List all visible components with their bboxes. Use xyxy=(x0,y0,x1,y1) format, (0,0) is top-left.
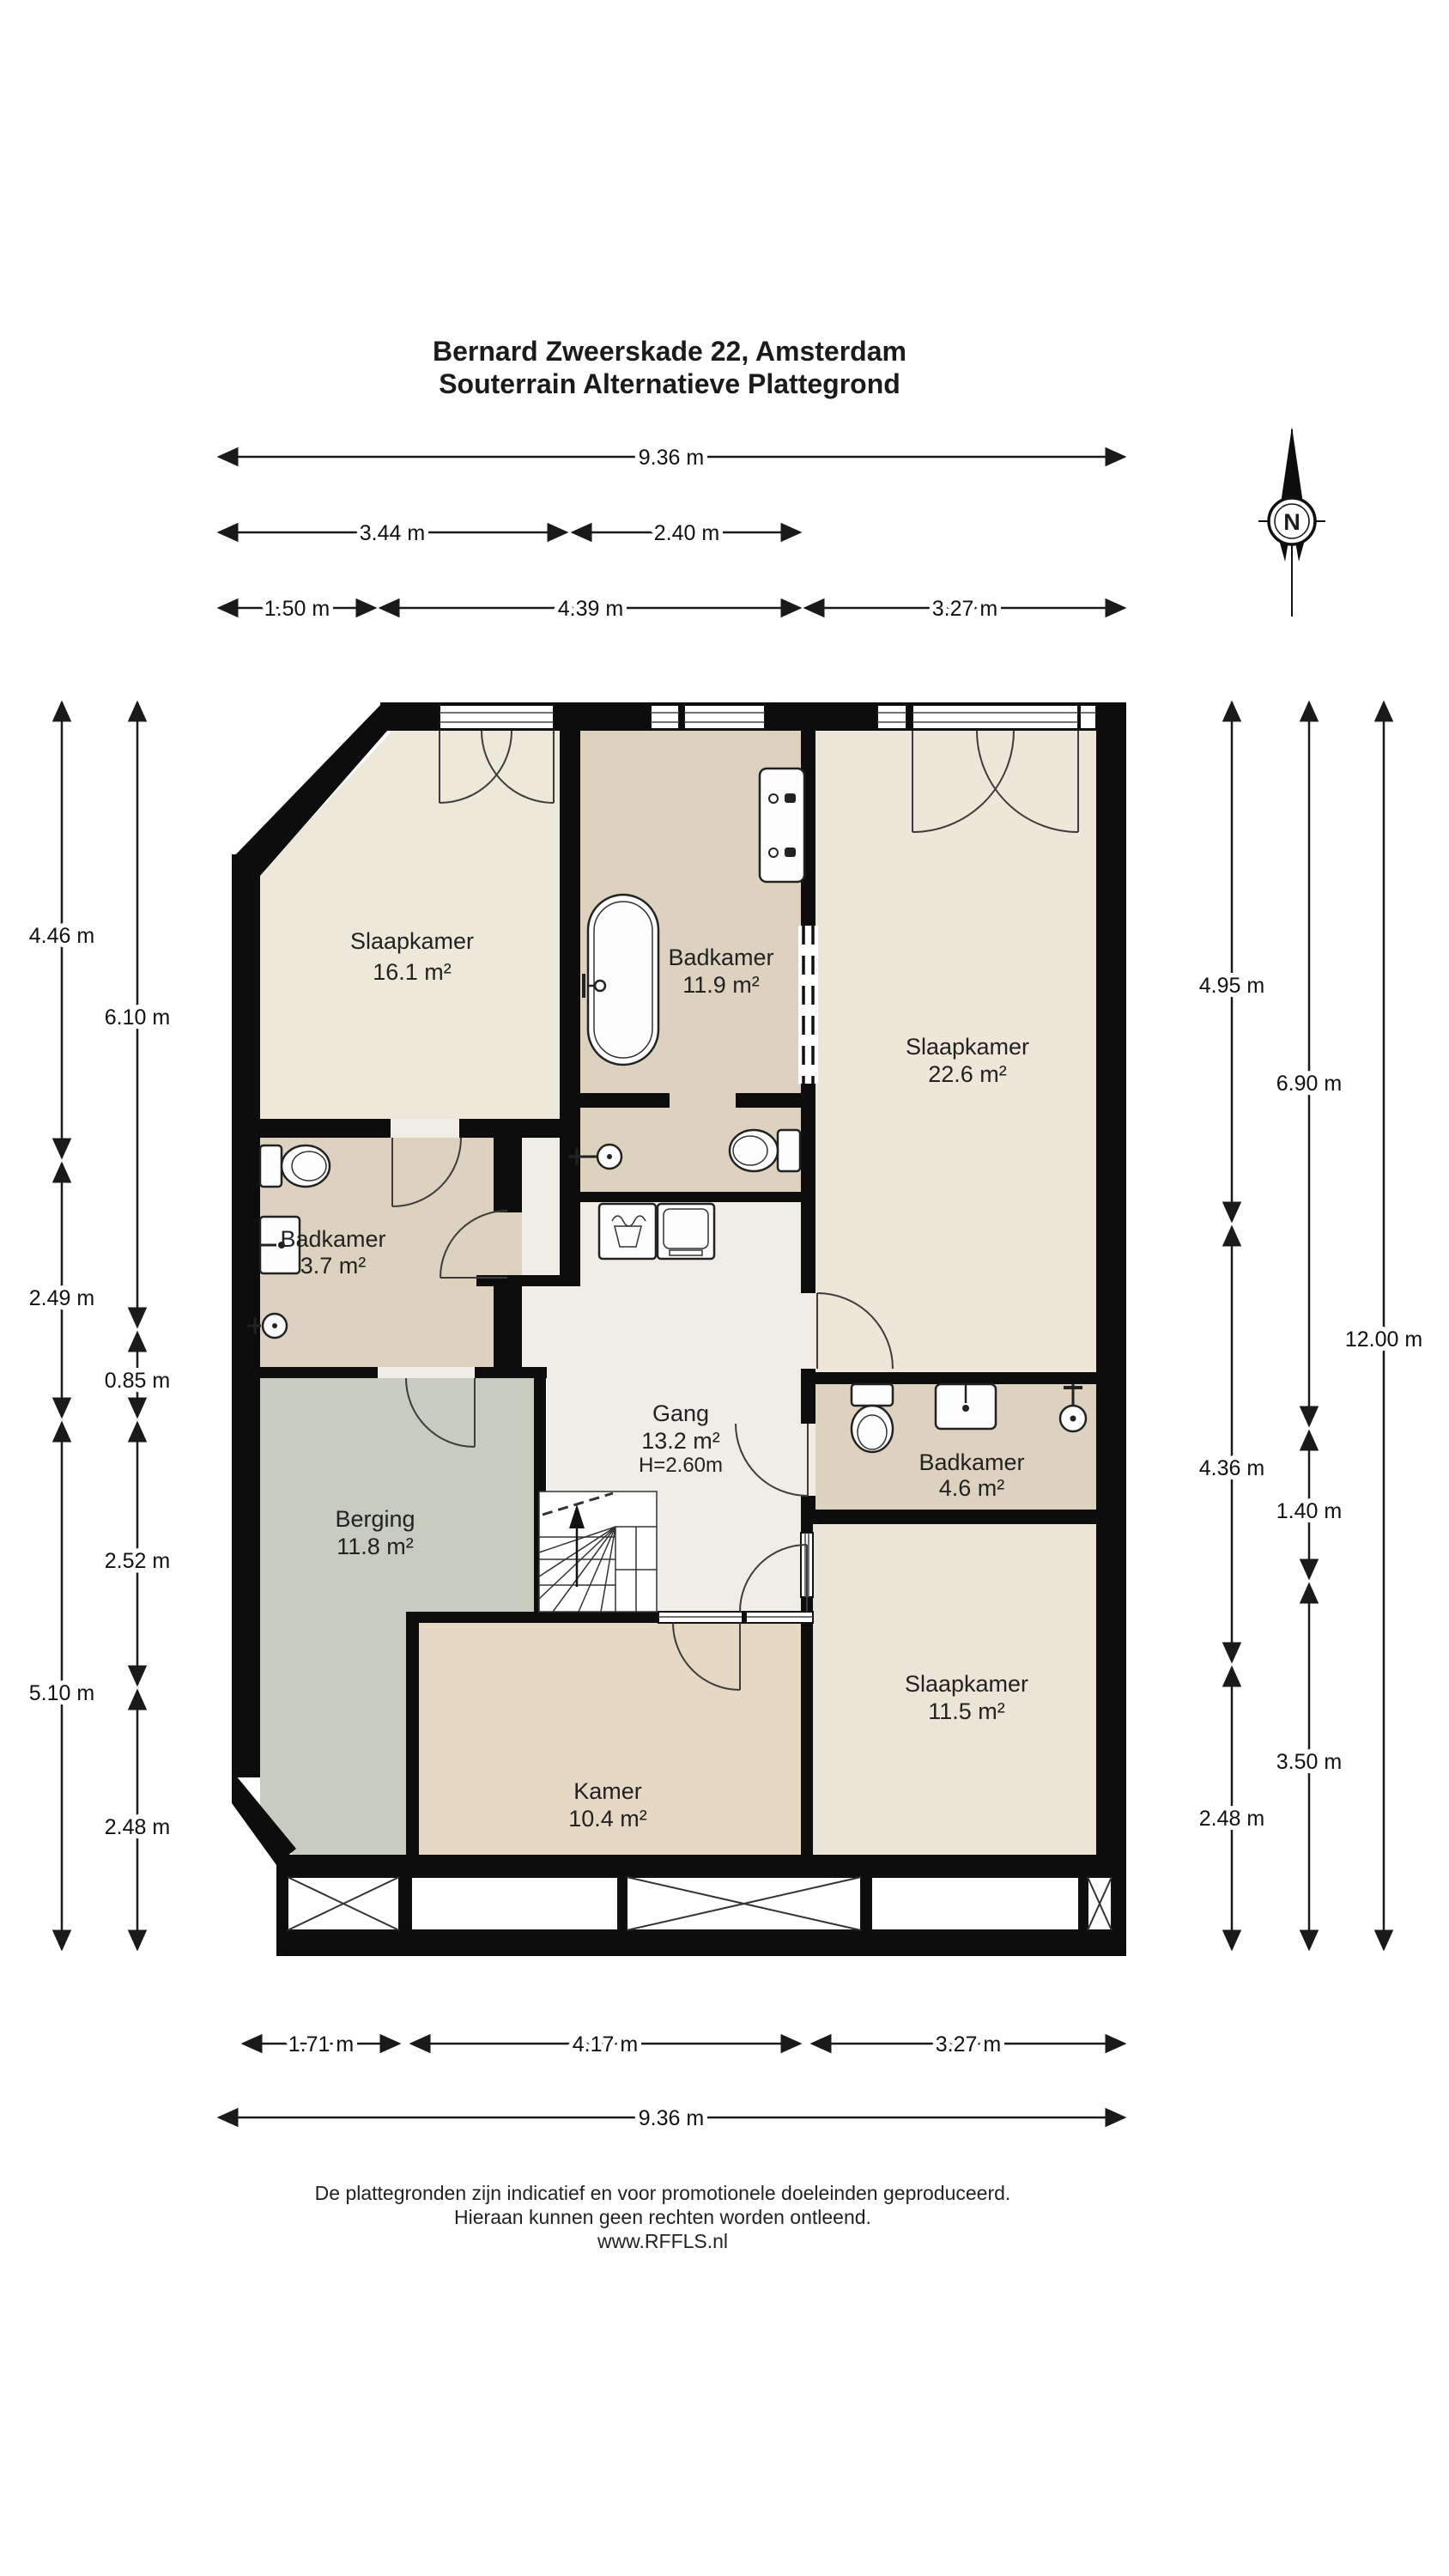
page-title-line2: Souterrain Alternatieve Plattegrond xyxy=(439,368,900,399)
dim-left-085: 0.85 m xyxy=(105,1369,170,1393)
dimensions-bottom: 1.71 m 4.17 m 3.27 m 9.36 m xyxy=(219,2032,1125,2130)
dim-left-249: 2.49 m xyxy=(29,1286,94,1310)
label-slaapkamer-11-5-area: 11.5 m² xyxy=(928,1698,1005,1724)
washing-machine-icon xyxy=(599,1204,656,1259)
label-kamer-name: Kamer xyxy=(573,1778,642,1804)
label-slaapkamer-22-6-name: Slaapkamer xyxy=(906,1034,1029,1060)
label-badkamer-4-6-name: Badkamer xyxy=(919,1449,1024,1475)
radiator-panel-icon xyxy=(760,769,804,882)
label-badkamer-3-7-area: 3.7 m² xyxy=(300,1253,367,1279)
bathtub-icon xyxy=(584,895,658,1065)
floor-corridor xyxy=(522,1138,560,1286)
dim-right-495: 4.95 m xyxy=(1199,974,1264,998)
dim-right-248: 2.48 m xyxy=(1199,1807,1264,1831)
floor-doorway-1 xyxy=(391,1119,459,1138)
dashed-partition xyxy=(798,926,818,1084)
label-slaapkamer-11-5-name: Slaapkamer xyxy=(905,1671,1028,1697)
label-gang-area: 13.2 m² xyxy=(641,1428,720,1454)
hatched-lightwell-right xyxy=(1088,1877,1112,1930)
dim-bottom-total: 9.36 m xyxy=(639,2106,704,2130)
label-berging-area: 11.8 m² xyxy=(336,1534,414,1559)
label-berging-name: Berging xyxy=(335,1506,415,1532)
label-gang-height: H=2.60m xyxy=(639,1454,723,1477)
label-slaapkamer-22-6-area: 22.6 m² xyxy=(928,1061,1007,1087)
window-badkamer-left xyxy=(651,705,679,729)
footer-line1: De plattegronden zijn indicatief en voor… xyxy=(315,2182,1011,2204)
page-title-line1: Bernard Zweerskade 22, Amsterdam xyxy=(433,336,906,367)
dim-left-446: 4.46 m xyxy=(29,924,94,948)
dim-top-total: 9.36 m xyxy=(639,446,704,470)
dim-left-510: 5.10 m xyxy=(29,1681,94,1705)
dim-right-350: 3.50 m xyxy=(1276,1750,1342,1774)
dim-left-248: 2.48 m xyxy=(105,1815,170,1839)
french-door-frame-slaapkamer-16-1 xyxy=(440,705,554,729)
dim-right-1200: 12.00 m xyxy=(1345,1327,1422,1352)
dim-top-240: 2.40 m xyxy=(654,521,719,545)
window-slaapkamer-22-6-right xyxy=(1080,705,1096,729)
bottom-wall-windows xyxy=(288,1877,1112,1930)
footer-line2: Hieraan kunnen geen rechten worden ontle… xyxy=(454,2206,871,2228)
window-badkamer-right xyxy=(684,705,765,729)
label-badkamer-3-7-name: Badkamer xyxy=(280,1226,385,1252)
floor-doorway-2 xyxy=(378,1367,475,1378)
label-slaapkamer-16-1-area: 16.1 m² xyxy=(373,959,452,985)
dim-right-436: 4.36 m xyxy=(1199,1456,1264,1480)
dim-top-327: 3.27 m xyxy=(932,597,997,621)
dim-bottom-417: 4.17 m xyxy=(573,2032,638,2057)
label-slaapkamer-16-1-name: Slaapkamer xyxy=(350,928,474,954)
dimensions-left: 4.46 m 2.49 m 5.10 m 6.10 m 0.85 m 2.52 … xyxy=(29,702,170,1949)
label-badkamer-4-6-area: 4.6 m² xyxy=(939,1475,1005,1501)
compass-north-label: N xyxy=(1283,509,1300,535)
dim-top-344: 3.44 m xyxy=(360,521,425,545)
floor-doorway-3 xyxy=(494,1212,522,1278)
floor-gang-west xyxy=(522,1286,547,1367)
dim-left-252: 2.52 m xyxy=(105,1549,170,1573)
dim-bottom-327: 3.27 m xyxy=(936,2032,1001,2057)
dim-right-140: 1.40 m xyxy=(1276,1499,1342,1523)
doorway-band-kamer xyxy=(658,1612,813,1623)
north-compass-icon: N xyxy=(1258,427,1325,617)
toilet-icon-badkamer-4-6 xyxy=(852,1384,893,1452)
window-kamer-bottom xyxy=(411,1877,618,1930)
french-door-frame-slaapkamer-22-6 xyxy=(912,705,1078,729)
label-gang-name: Gang xyxy=(652,1400,709,1426)
floorplan-drawing: Bernard Zweerskade 22, Amsterdam Souterr… xyxy=(0,0,1449,2576)
window-slaapkamer-11-5-bottom xyxy=(871,1877,1079,1930)
dryer-icon xyxy=(658,1204,714,1259)
dim-right-690: 6.90 m xyxy=(1276,1072,1342,1096)
dimensions-top: 9.36 m 3.44 m 2.40 m 1.50 m 4.39 m 3.27 … xyxy=(219,446,1125,621)
dim-top-439: 4.39 m xyxy=(558,597,623,621)
dim-bottom-171: 1.71 m xyxy=(288,2032,354,2057)
toilet-icon-badkamer-11-9 xyxy=(730,1130,800,1171)
sink-icon-badkamer-4-6 xyxy=(936,1384,996,1429)
hatched-lightwell-left xyxy=(288,1877,399,1930)
footer-disclaimer: De plattegronden zijn indicatief en voor… xyxy=(315,2182,1011,2252)
label-badkamer-11-9-area: 11.9 m² xyxy=(682,972,760,998)
label-kamer-area: 10.4 m² xyxy=(568,1806,647,1832)
floorplan-page: Bernard Zweerskade 22, Amsterdam Souterr… xyxy=(0,0,1449,2576)
dim-left-610: 6.10 m xyxy=(105,1005,170,1030)
window-slaapkamer-22-6-left xyxy=(877,705,906,729)
hatched-lightwell-center xyxy=(627,1877,861,1930)
label-badkamer-11-9-name: Badkamer xyxy=(668,945,773,970)
staircase xyxy=(539,1492,657,1612)
dim-top-150: 1.50 m xyxy=(264,597,330,621)
footer-line3: www.RFFLS.nl xyxy=(597,2230,728,2252)
toilet-icon-badkamer-3-7 xyxy=(260,1145,330,1187)
dimensions-right: 4.95 m 4.36 m 2.48 m 6.90 m 1.40 m 3.50 … xyxy=(1199,702,1422,1949)
